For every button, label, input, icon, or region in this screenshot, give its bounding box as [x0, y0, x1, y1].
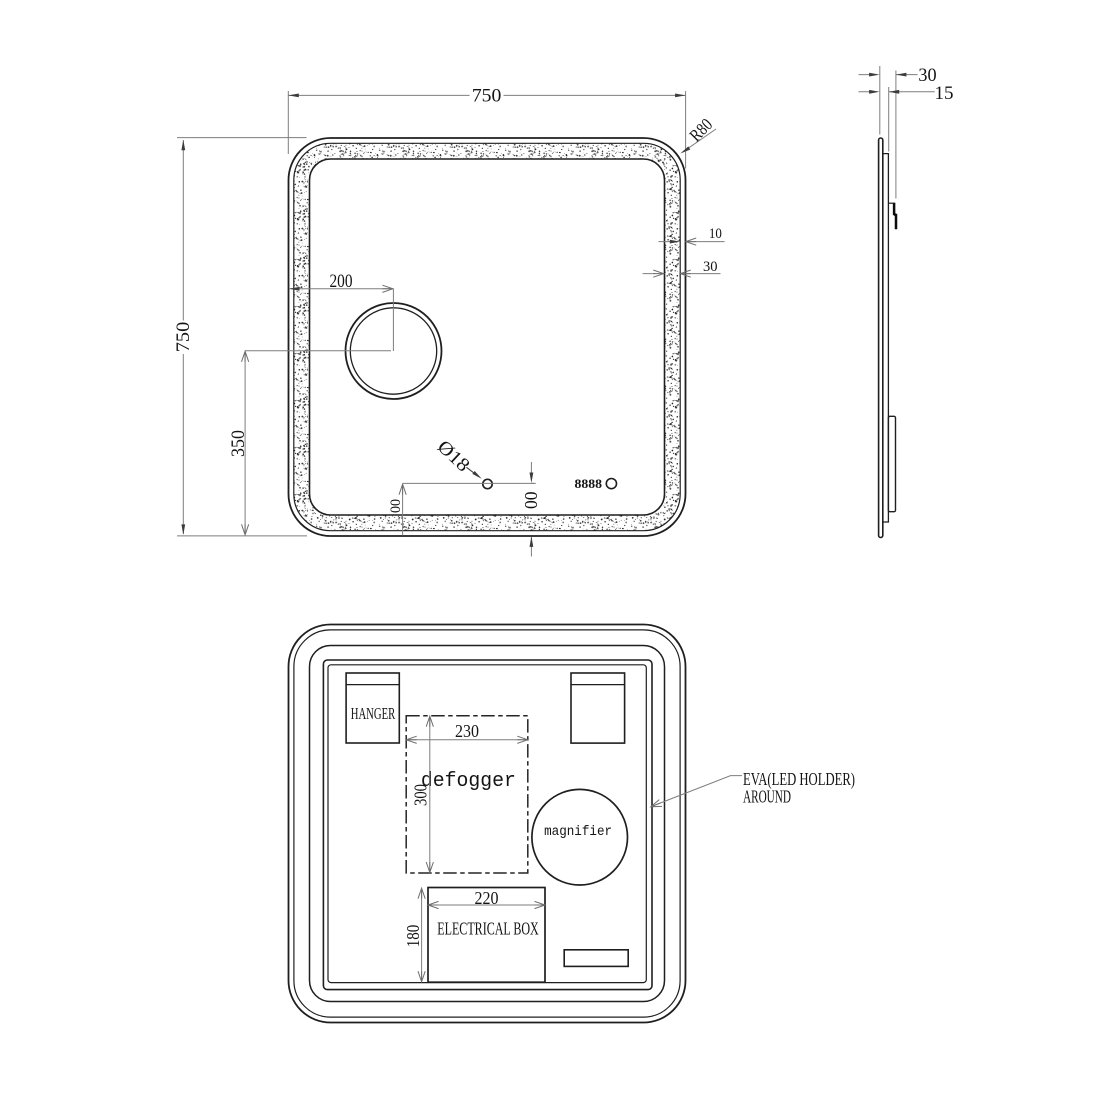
svg-text:300: 300	[411, 784, 431, 806]
svg-text:750: 750	[472, 86, 502, 107]
svg-text:30: 30	[703, 259, 718, 275]
svg-text:00: 00	[521, 492, 541, 510]
svg-text:8888: 8888	[575, 476, 603, 491]
svg-text:ELECTRICAL BOX: ELECTRICAL BOX	[437, 918, 539, 938]
svg-text:15: 15	[935, 83, 954, 104]
svg-text:defogger: defogger	[421, 770, 516, 793]
svg-text:magnifier: magnifier	[544, 825, 612, 840]
svg-text:HANGER: HANGER	[351, 704, 396, 723]
svg-text:750: 750	[173, 322, 194, 353]
svg-text:AROUND: AROUND	[743, 787, 791, 807]
svg-text:00: 00	[388, 499, 404, 513]
svg-text:350: 350	[228, 430, 249, 457]
svg-text:200: 200	[330, 271, 353, 292]
svg-text:10: 10	[709, 226, 722, 242]
svg-text:220: 220	[475, 888, 499, 908]
svg-text:180: 180	[403, 925, 423, 948]
svg-text:230: 230	[455, 721, 479, 741]
